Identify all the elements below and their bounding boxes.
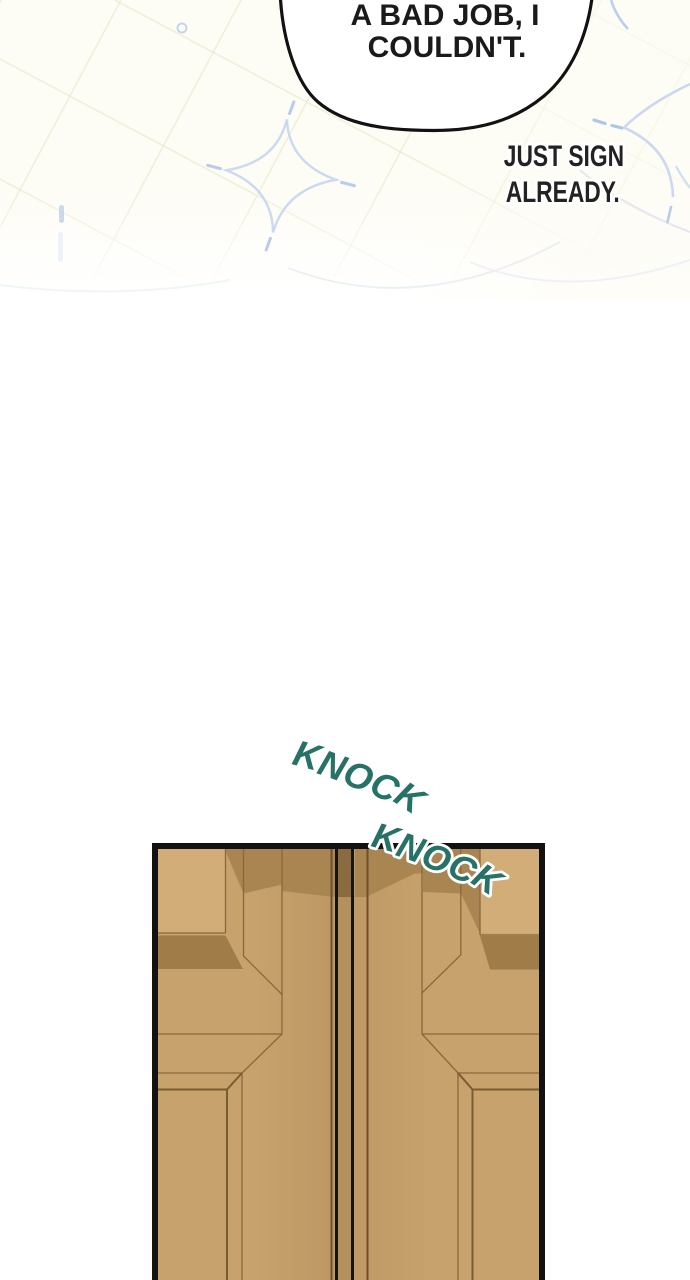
- svg-text:COULDN'T.: COULDN'T.: [368, 31, 527, 64]
- svg-text:JUST SIGN: JUST SIGN: [504, 139, 624, 173]
- svg-text:A BAD JOB, I: A BAD JOB, I: [351, 0, 540, 32]
- svg-text:ALREADY.: ALREADY.: [506, 175, 620, 209]
- svg-text:KNOCK: KNOCK: [283, 730, 437, 827]
